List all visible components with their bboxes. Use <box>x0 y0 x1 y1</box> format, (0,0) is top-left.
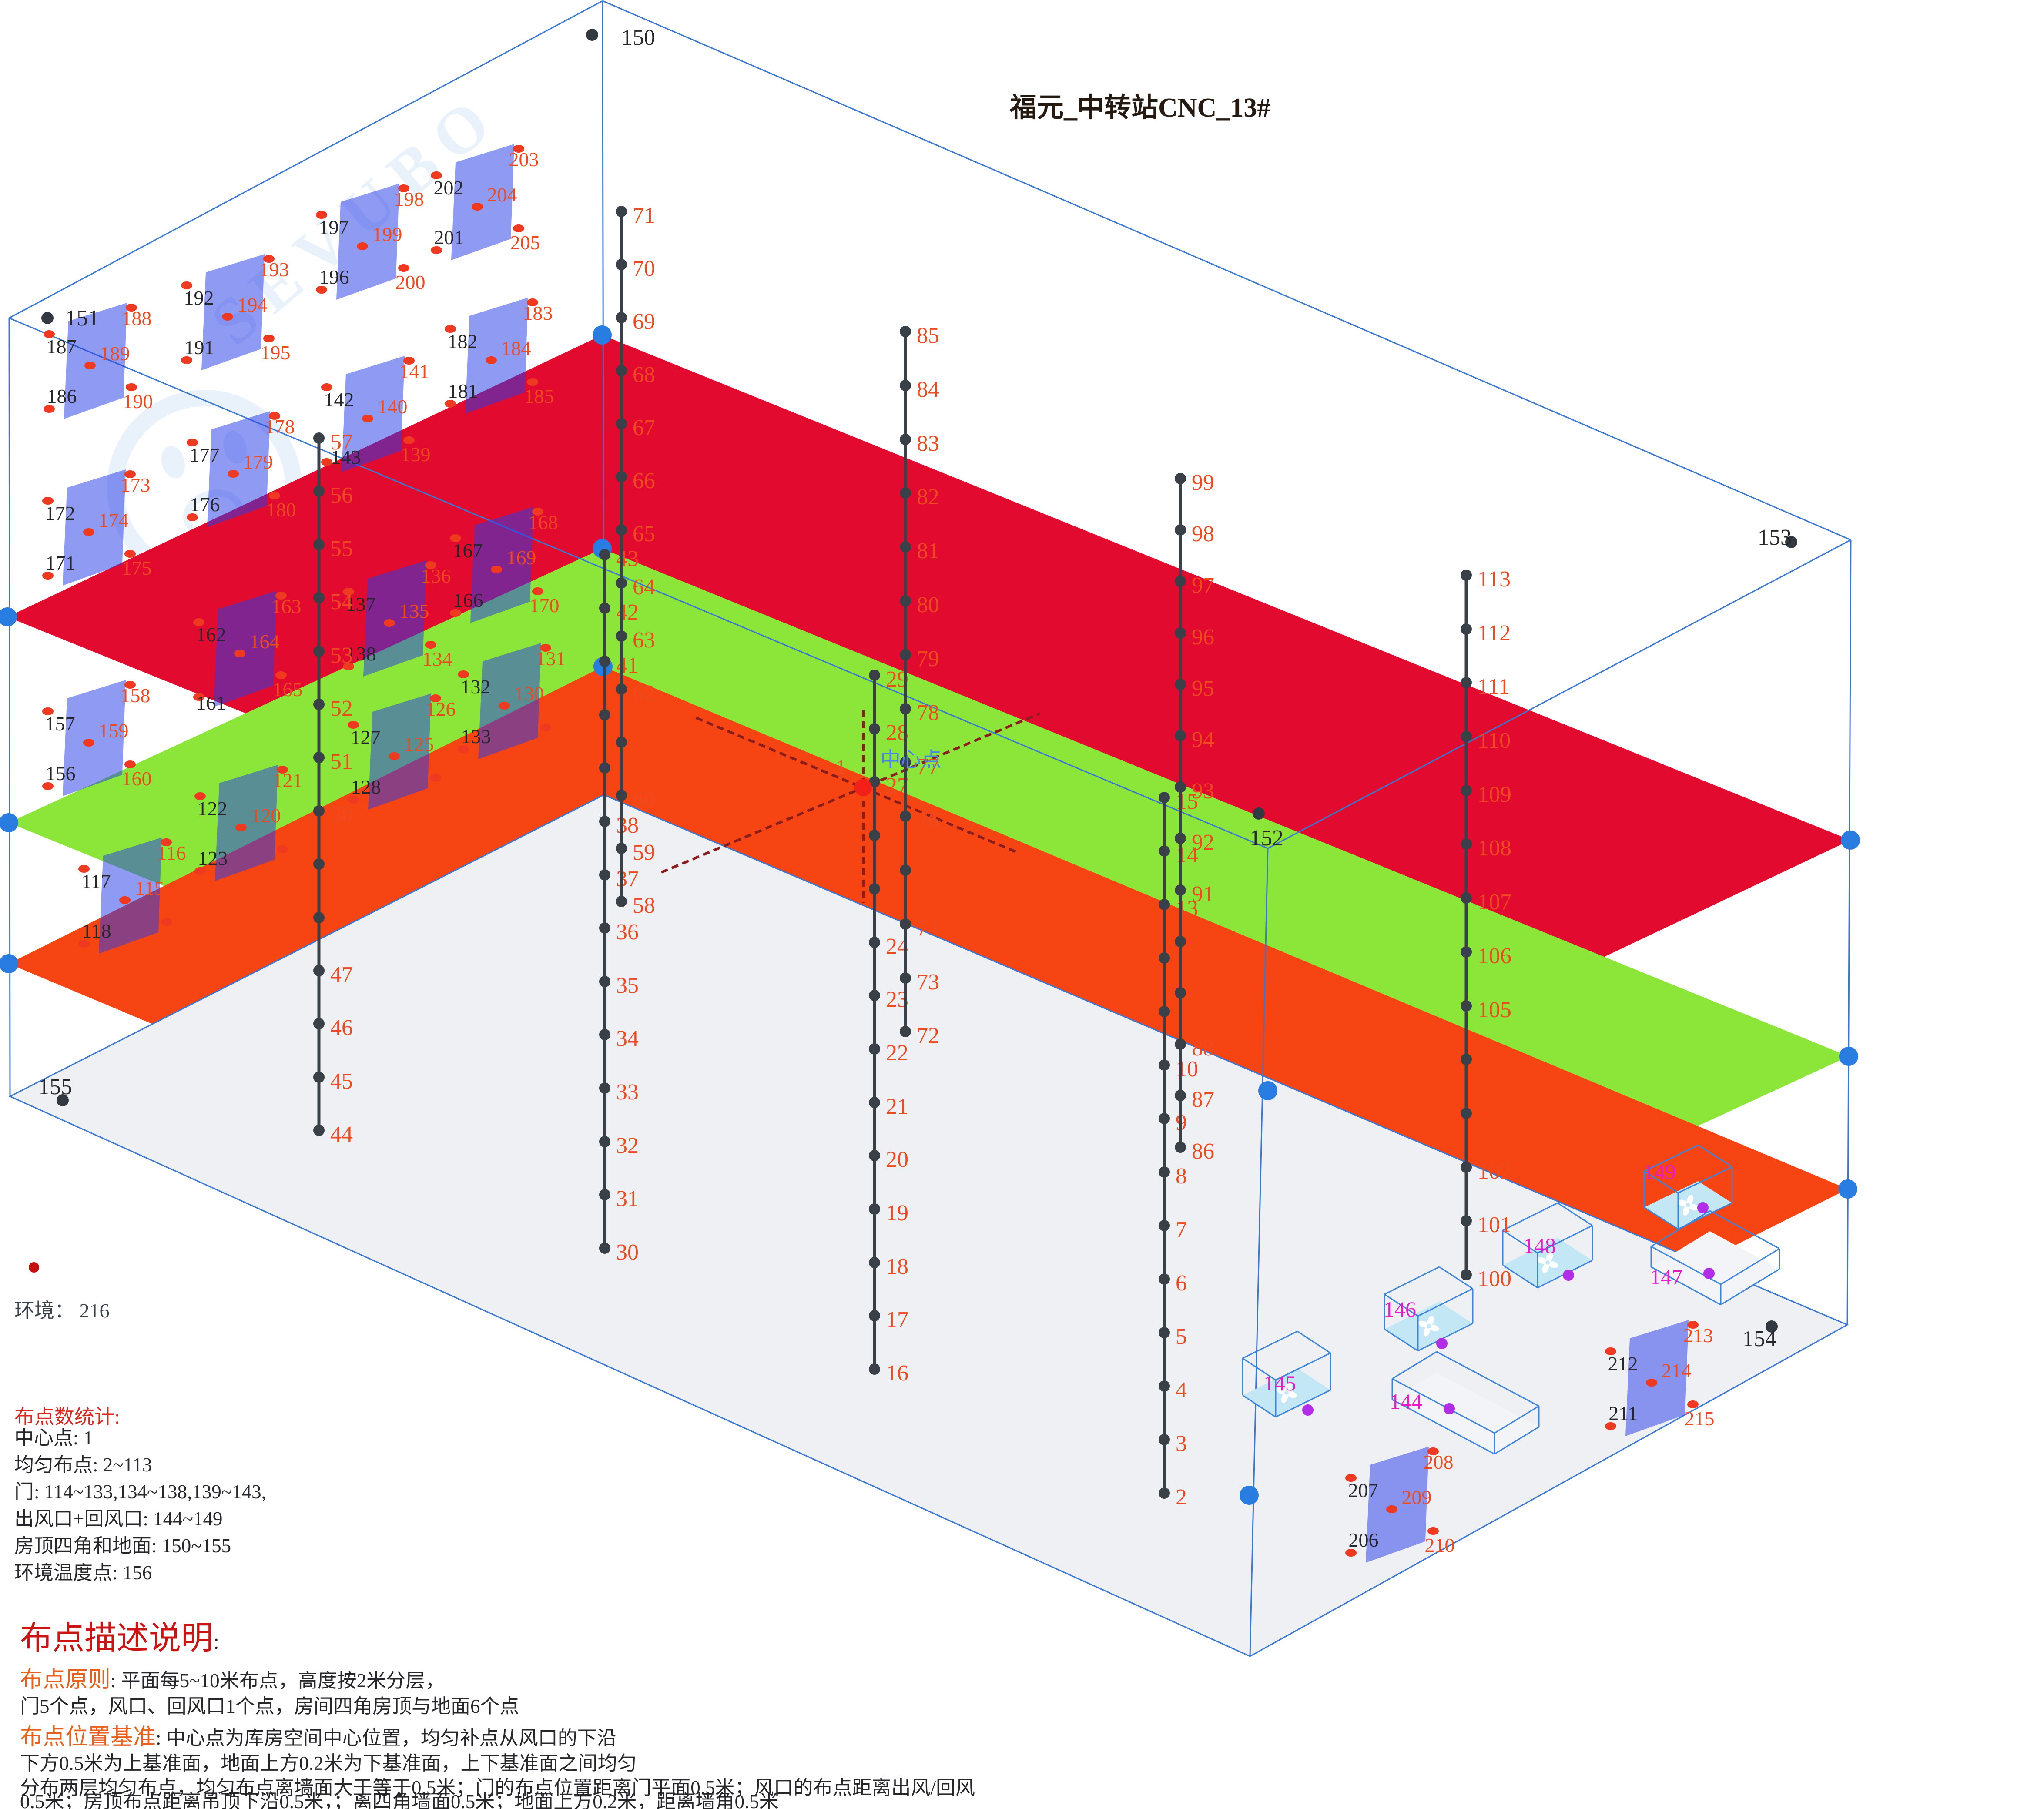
svg-text:71: 71 <box>633 203 655 228</box>
svg-text:91: 91 <box>1192 882 1214 907</box>
svg-text:6: 6 <box>1176 1271 1187 1296</box>
svg-text:199: 199 <box>372 223 402 245</box>
svg-text:31: 31 <box>616 1186 639 1211</box>
svg-text:84: 84 <box>917 377 939 402</box>
svg-text:72: 72 <box>917 1023 939 1048</box>
svg-text:65: 65 <box>633 522 655 546</box>
svg-text:210: 210 <box>1425 1534 1455 1556</box>
svg-text:155: 155 <box>38 1075 72 1099</box>
svg-text:177: 177 <box>190 444 220 466</box>
svg-text:164: 164 <box>250 630 280 653</box>
svg-text:96: 96 <box>1192 625 1214 650</box>
svg-text:79: 79 <box>917 647 939 671</box>
svg-text:203: 203 <box>509 148 539 171</box>
svg-text:50: 50 <box>330 803 353 827</box>
svg-text:190: 190 <box>123 390 153 412</box>
svg-text:62: 62 <box>633 681 655 706</box>
svg-text:57: 57 <box>330 430 353 455</box>
svg-text:140: 140 <box>378 395 408 418</box>
svg-text:47: 47 <box>330 962 353 987</box>
svg-text:174: 174 <box>99 509 129 531</box>
svg-text:145: 145 <box>1263 1371 1296 1395</box>
svg-text:163: 163 <box>271 595 302 617</box>
svg-text:211: 211 <box>1608 1402 1638 1424</box>
svg-text:99: 99 <box>1192 470 1214 495</box>
svg-text:118: 118 <box>82 920 111 942</box>
svg-text:0.5米；房顶布点距离吊顶下沿0.5米，；离四角墙面0.5米: 0.5米；房顶布点距离吊顶下沿0.5米，；离四角墙面0.5米；地面上方0.2米，… <box>20 1791 779 1809</box>
svg-text:213: 213 <box>1683 1324 1713 1347</box>
svg-text:44: 44 <box>330 1122 353 1147</box>
svg-text:157: 157 <box>45 713 75 735</box>
svg-text:18: 18 <box>886 1254 908 1279</box>
svg-text:82: 82 <box>917 485 939 509</box>
svg-text:中心点: 中心点 <box>880 749 942 771</box>
svg-text:87: 87 <box>1192 1087 1214 1112</box>
svg-text:80: 80 <box>917 593 939 617</box>
svg-text:126: 126 <box>426 698 456 720</box>
svg-text:8: 8 <box>1176 1164 1187 1189</box>
svg-text:60: 60 <box>633 787 655 812</box>
svg-text:175: 175 <box>122 557 152 579</box>
svg-text:32: 32 <box>616 1133 639 1158</box>
svg-text:101: 101 <box>1478 1213 1511 1237</box>
svg-text:167: 167 <box>453 539 483 562</box>
svg-text:144: 144 <box>1390 1389 1422 1414</box>
svg-text:128: 128 <box>351 776 381 798</box>
svg-text:均匀布点: 2~113: 均匀布点: 2~113 <box>14 1454 152 1476</box>
svg-text:95: 95 <box>1192 676 1214 701</box>
svg-text:85: 85 <box>917 323 939 348</box>
svg-text:185: 185 <box>524 385 554 407</box>
svg-text:212: 212 <box>1608 1353 1638 1375</box>
svg-text:54: 54 <box>330 590 353 614</box>
svg-text:37: 37 <box>616 867 639 891</box>
svg-text:43: 43 <box>616 546 639 571</box>
svg-text:环境： 216: 环境： 216 <box>14 1300 110 1322</box>
svg-text:109: 109 <box>1478 782 1511 807</box>
svg-text:17: 17 <box>886 1307 908 1332</box>
svg-text:191: 191 <box>184 336 214 358</box>
svg-text:布点数统计:: 布点数统计: <box>14 1406 120 1428</box>
svg-text:下方0.5米为上基准面，地面上方0.2米为下基准面，上下基准: 下方0.5米为上基准面，地面上方0.2米为下基准面，上下基准面之间均匀 <box>20 1752 637 1774</box>
svg-text:20: 20 <box>886 1147 908 1172</box>
svg-text:34: 34 <box>616 1026 639 1051</box>
svg-text:福元_中转站CNC_13#: 福元_中转站CNC_13# <box>1009 93 1270 123</box>
svg-text:3: 3 <box>1176 1431 1187 1456</box>
svg-text:153: 153 <box>1758 525 1792 550</box>
svg-text:201: 201 <box>434 226 464 248</box>
svg-text:200: 200 <box>395 271 426 293</box>
svg-text:122: 122 <box>198 797 228 820</box>
svg-text:36: 36 <box>616 920 639 945</box>
svg-text:152: 152 <box>1250 826 1283 851</box>
svg-text:208: 208 <box>1424 1451 1454 1473</box>
svg-text:150: 150 <box>621 25 655 50</box>
svg-text:房顶四角和地面: 150~155: 房顶四角和地面: 150~155 <box>14 1535 231 1557</box>
svg-text:81: 81 <box>917 539 939 563</box>
svg-text:45: 45 <box>330 1069 353 1094</box>
svg-text:178: 178 <box>265 415 295 438</box>
svg-text:105: 105 <box>1478 998 1511 1022</box>
svg-text:63: 63 <box>633 628 655 653</box>
svg-text:136: 136 <box>421 565 451 587</box>
svg-text:133: 133 <box>461 725 491 747</box>
svg-text:92: 92 <box>1192 830 1214 855</box>
svg-text:194: 194 <box>238 294 268 316</box>
svg-text:58: 58 <box>633 893 655 918</box>
svg-text:206: 206 <box>1349 1529 1379 1551</box>
svg-text:134: 134 <box>422 648 452 670</box>
svg-text:76: 76 <box>917 808 939 833</box>
svg-text:204: 204 <box>487 184 517 206</box>
svg-text:108: 108 <box>1478 836 1511 861</box>
svg-text:147: 147 <box>1650 1265 1682 1289</box>
svg-text:205: 205 <box>510 231 540 254</box>
svg-text:88: 88 <box>1192 1036 1214 1061</box>
svg-text:117: 117 <box>81 870 111 892</box>
svg-text:151: 151 <box>65 306 99 331</box>
svg-text:170: 170 <box>529 594 560 616</box>
svg-text:198: 198 <box>394 188 424 210</box>
svg-text:59: 59 <box>633 840 655 865</box>
svg-text:38: 38 <box>616 813 639 838</box>
svg-text:142: 142 <box>324 389 354 411</box>
svg-text:67: 67 <box>633 415 655 440</box>
svg-text:132: 132 <box>461 676 491 698</box>
svg-text:33: 33 <box>616 1080 639 1105</box>
svg-text:94: 94 <box>1192 727 1214 752</box>
svg-text:214: 214 <box>1662 1360 1692 1382</box>
svg-text:127: 127 <box>351 726 381 748</box>
svg-text:110: 110 <box>1478 728 1511 753</box>
svg-text:193: 193 <box>259 258 289 281</box>
svg-text:187: 187 <box>47 335 77 358</box>
svg-text:184: 184 <box>501 337 531 359</box>
svg-text:154: 154 <box>1742 1327 1776 1351</box>
svg-text:21: 21 <box>886 1094 908 1119</box>
svg-text:121: 121 <box>273 769 303 791</box>
svg-text:出风口+回风口: 144~149: 出风口+回风口: 144~149 <box>14 1508 222 1530</box>
svg-text:123: 123 <box>198 847 228 869</box>
svg-text:83: 83 <box>917 431 939 456</box>
svg-text:189: 189 <box>100 342 130 365</box>
svg-text:46: 46 <box>330 1015 353 1040</box>
svg-text:176: 176 <box>190 493 220 516</box>
svg-text:门: 114~133,134~138,139~143,: 门: 114~133,134~138,139~143, <box>14 1481 266 1503</box>
svg-text:115: 115 <box>135 877 164 899</box>
svg-text:19: 19 <box>886 1201 908 1226</box>
svg-text:布点位置基准: 中心点为库房空间中心位置，均匀补点从风口的下: 布点位置基准: 中心点为库房空间中心位置，均匀补点从风口的下沿 <box>20 1725 617 1750</box>
svg-text:120: 120 <box>251 804 281 827</box>
svg-text:161: 161 <box>196 692 226 714</box>
svg-text:181: 181 <box>448 380 478 402</box>
svg-text:74: 74 <box>917 916 939 941</box>
svg-text:139: 139 <box>401 443 431 466</box>
svg-text:30: 30 <box>616 1240 639 1265</box>
svg-text:布点原则: 平面每5~10米布点，高度按2米分层，: 布点原则: 平面每5~10米布点，高度按2米分层， <box>20 1668 445 1692</box>
svg-text:69: 69 <box>633 309 655 334</box>
svg-text:215: 215 <box>1685 1407 1715 1430</box>
svg-text:196: 196 <box>319 266 349 288</box>
svg-text:68: 68 <box>633 362 655 387</box>
svg-text:56: 56 <box>330 483 353 508</box>
svg-text:171: 171 <box>46 552 76 574</box>
svg-text:113: 113 <box>1478 567 1511 592</box>
svg-text:149: 149 <box>1643 1159 1676 1184</box>
svg-text:93: 93 <box>1192 779 1214 804</box>
svg-text:158: 158 <box>121 684 151 707</box>
svg-text:52: 52 <box>330 696 353 721</box>
svg-text:173: 173 <box>121 474 151 496</box>
svg-text:环境温度点: 156: 环境温度点: 156 <box>14 1562 152 1584</box>
svg-text:186: 186 <box>47 385 77 407</box>
svg-text:195: 195 <box>261 342 291 364</box>
svg-text:183: 183 <box>523 302 553 324</box>
svg-text:73: 73 <box>917 970 939 995</box>
svg-text:146: 146 <box>1384 1297 1416 1321</box>
svg-text:169: 169 <box>506 546 536 569</box>
svg-text:86: 86 <box>1192 1139 1214 1164</box>
svg-text:中心点: 1: 中心点: 1 <box>14 1427 93 1449</box>
svg-text:160: 160 <box>122 767 152 790</box>
svg-text:131: 131 <box>536 647 566 670</box>
svg-text:35: 35 <box>616 973 639 998</box>
svg-text:141: 141 <box>399 360 429 382</box>
svg-text:102: 102 <box>1478 1159 1511 1184</box>
svg-text:197: 197 <box>319 216 349 238</box>
svg-text:192: 192 <box>184 287 214 309</box>
svg-text:182: 182 <box>448 330 478 352</box>
svg-text:111: 111 <box>1478 674 1510 699</box>
svg-text:148: 148 <box>1523 1233 1556 1258</box>
svg-text:162: 162 <box>196 623 226 646</box>
svg-text:55: 55 <box>330 536 353 561</box>
svg-text:42: 42 <box>616 600 639 625</box>
svg-text:180: 180 <box>266 499 296 521</box>
svg-text:2: 2 <box>1176 1485 1187 1510</box>
svg-text:4: 4 <box>1176 1378 1187 1403</box>
svg-text:107: 107 <box>1478 890 1511 915</box>
svg-text:125: 125 <box>404 733 434 755</box>
svg-text:78: 78 <box>917 700 939 725</box>
svg-text:188: 188 <box>122 307 152 329</box>
svg-text:16: 16 <box>886 1361 908 1386</box>
svg-text:207: 207 <box>1348 1479 1378 1501</box>
svg-text:166: 166 <box>453 589 483 611</box>
svg-text:51: 51 <box>330 749 353 774</box>
svg-text:112: 112 <box>1478 621 1511 646</box>
svg-text:98: 98 <box>1192 522 1214 546</box>
svg-text:179: 179 <box>243 451 273 473</box>
svg-text:5: 5 <box>1176 1324 1187 1349</box>
svg-text:64: 64 <box>633 575 655 600</box>
svg-text:130: 130 <box>514 683 544 705</box>
svg-text:156: 156 <box>46 762 76 784</box>
svg-text:165: 165 <box>273 678 303 700</box>
svg-text:172: 172 <box>45 502 75 524</box>
svg-text:135: 135 <box>399 600 429 622</box>
svg-text:106: 106 <box>1478 944 1511 968</box>
svg-text:202: 202 <box>434 177 464 199</box>
svg-text:116: 116 <box>157 842 186 864</box>
svg-text:70: 70 <box>633 256 655 281</box>
svg-text:7: 7 <box>1176 1217 1187 1242</box>
svg-text:41: 41 <box>616 653 639 678</box>
svg-text:209: 209 <box>1402 1486 1432 1508</box>
svg-text:22: 22 <box>886 1041 908 1065</box>
svg-text:168: 168 <box>528 511 558 533</box>
svg-text:门5个点，风口、回风口1个点，房间四角房顶与地面6个点: 门5个点，风口、回风口1个点，房间四角房顶与地面6个点 <box>20 1695 519 1717</box>
svg-text:1: 1 <box>836 756 846 779</box>
svg-text:布点描述说明:: 布点描述说明: <box>20 1621 219 1656</box>
svg-text:100: 100 <box>1478 1266 1511 1291</box>
svg-text:97: 97 <box>1192 573 1214 598</box>
svg-text:66: 66 <box>633 469 655 493</box>
svg-text:159: 159 <box>99 720 129 742</box>
svg-text:53: 53 <box>330 643 353 668</box>
